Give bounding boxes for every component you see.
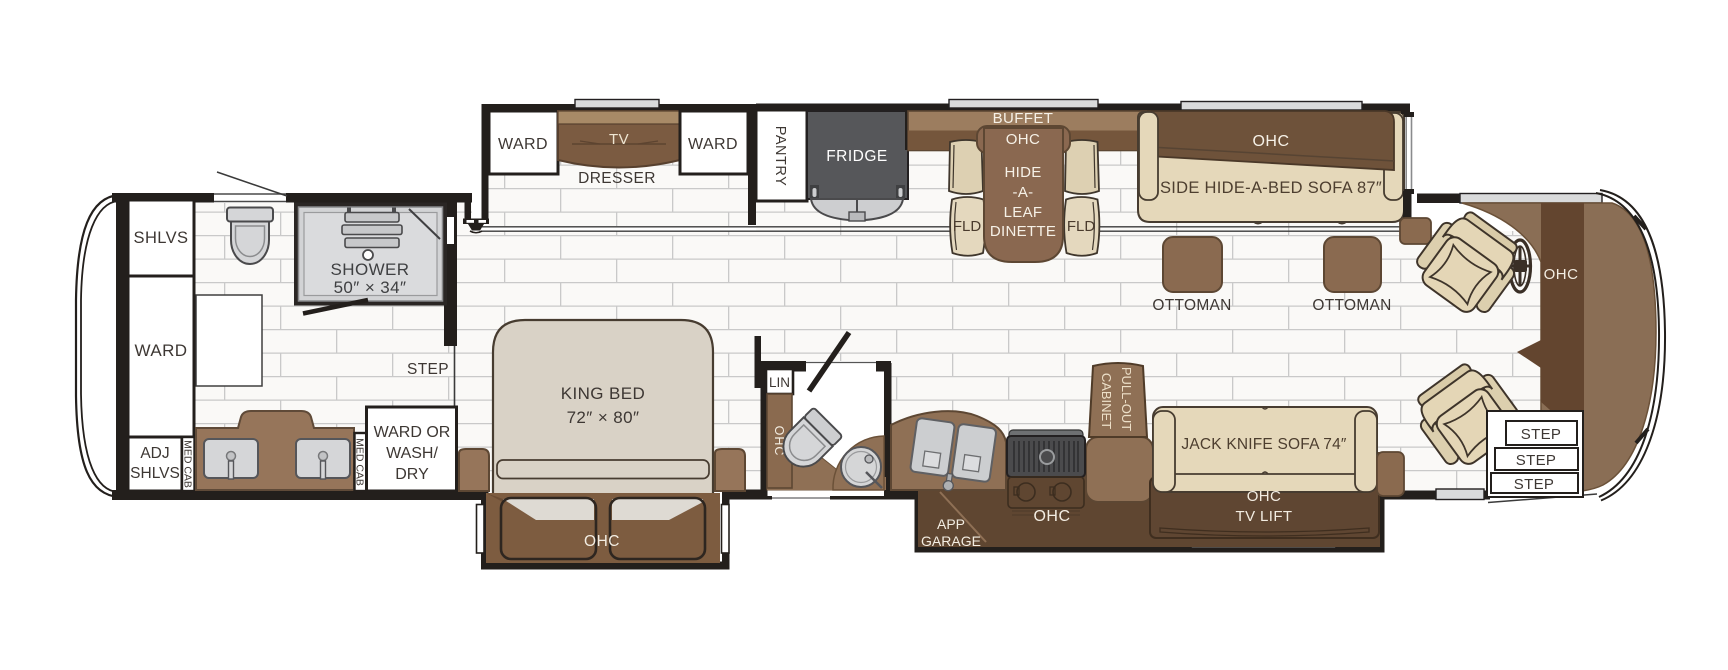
svg-text:OHC: OHC xyxy=(584,533,620,550)
svg-text:FLD: FLD xyxy=(1067,218,1096,235)
svg-text:KING BED: KING BED xyxy=(561,384,645,403)
svg-text:72″ × 80″: 72″ × 80″ xyxy=(567,408,640,427)
svg-text:WARD: WARD xyxy=(135,341,188,360)
svg-text:BUFFET: BUFFET xyxy=(993,110,1054,127)
svg-text:OHC: OHC xyxy=(1544,266,1579,283)
svg-text:-A-: -A- xyxy=(1013,184,1034,201)
svg-text:OHC: OHC xyxy=(1006,131,1041,148)
svg-text:OHC: OHC xyxy=(1247,488,1282,505)
svg-text:DINETTE: DINETTE xyxy=(990,223,1056,240)
svg-text:STEP: STEP xyxy=(407,361,449,378)
svg-text:OHC: OHC xyxy=(1033,508,1070,525)
svg-text:SHOWER: SHOWER xyxy=(331,260,410,279)
svg-text:WARD: WARD xyxy=(498,136,548,153)
svg-text:ADJ: ADJ xyxy=(140,445,169,462)
svg-text:WARD OR: WARD OR xyxy=(374,424,451,441)
svg-text:PULL-OUT: PULL-OUT xyxy=(1119,367,1134,431)
svg-text:STEP: STEP xyxy=(1514,476,1554,493)
svg-text:TV: TV xyxy=(609,131,629,148)
svg-text:TV LIFT: TV LIFT xyxy=(1236,508,1293,525)
svg-text:OTTOMAN: OTTOMAN xyxy=(1312,297,1391,314)
svg-text:JACK KNIFE SOFA 74″: JACK KNIFE SOFA 74″ xyxy=(1181,436,1347,453)
svg-text:APP: APP xyxy=(937,516,965,532)
svg-text:SIDE HIDE-A-BED SOFA 87″: SIDE HIDE-A-BED SOFA 87″ xyxy=(1160,179,1382,197)
svg-text:SHLVS: SHLVS xyxy=(130,465,180,482)
svg-text:LEAF: LEAF xyxy=(1004,204,1043,221)
svg-text:DRY: DRY xyxy=(395,466,429,483)
svg-text:GARAGE: GARAGE xyxy=(921,533,981,549)
svg-text:50″ × 34″: 50″ × 34″ xyxy=(334,278,407,297)
svg-text:MED CAB: MED CAB xyxy=(182,440,194,488)
svg-text:WASH/: WASH/ xyxy=(386,445,438,462)
svg-text:HIDE: HIDE xyxy=(1004,164,1041,181)
svg-text:SHLVS: SHLVS xyxy=(134,229,189,247)
svg-text:DRESSER: DRESSER xyxy=(578,170,656,187)
svg-text:MED CAB: MED CAB xyxy=(354,438,366,486)
svg-text:WARD: WARD xyxy=(688,136,738,153)
svg-text:OTTOMAN: OTTOMAN xyxy=(1152,297,1231,314)
svg-text:CABINET: CABINET xyxy=(1099,373,1114,429)
svg-text:STEP: STEP xyxy=(1516,452,1556,469)
svg-text:STEP: STEP xyxy=(1521,426,1561,443)
svg-text:PANTRY: PANTRY xyxy=(772,126,788,186)
svg-text:LIN: LIN xyxy=(769,375,790,390)
svg-text:FLD: FLD xyxy=(953,218,982,235)
svg-text:OHC: OHC xyxy=(1252,133,1289,150)
svg-text:FRIDGE: FRIDGE xyxy=(826,148,888,165)
